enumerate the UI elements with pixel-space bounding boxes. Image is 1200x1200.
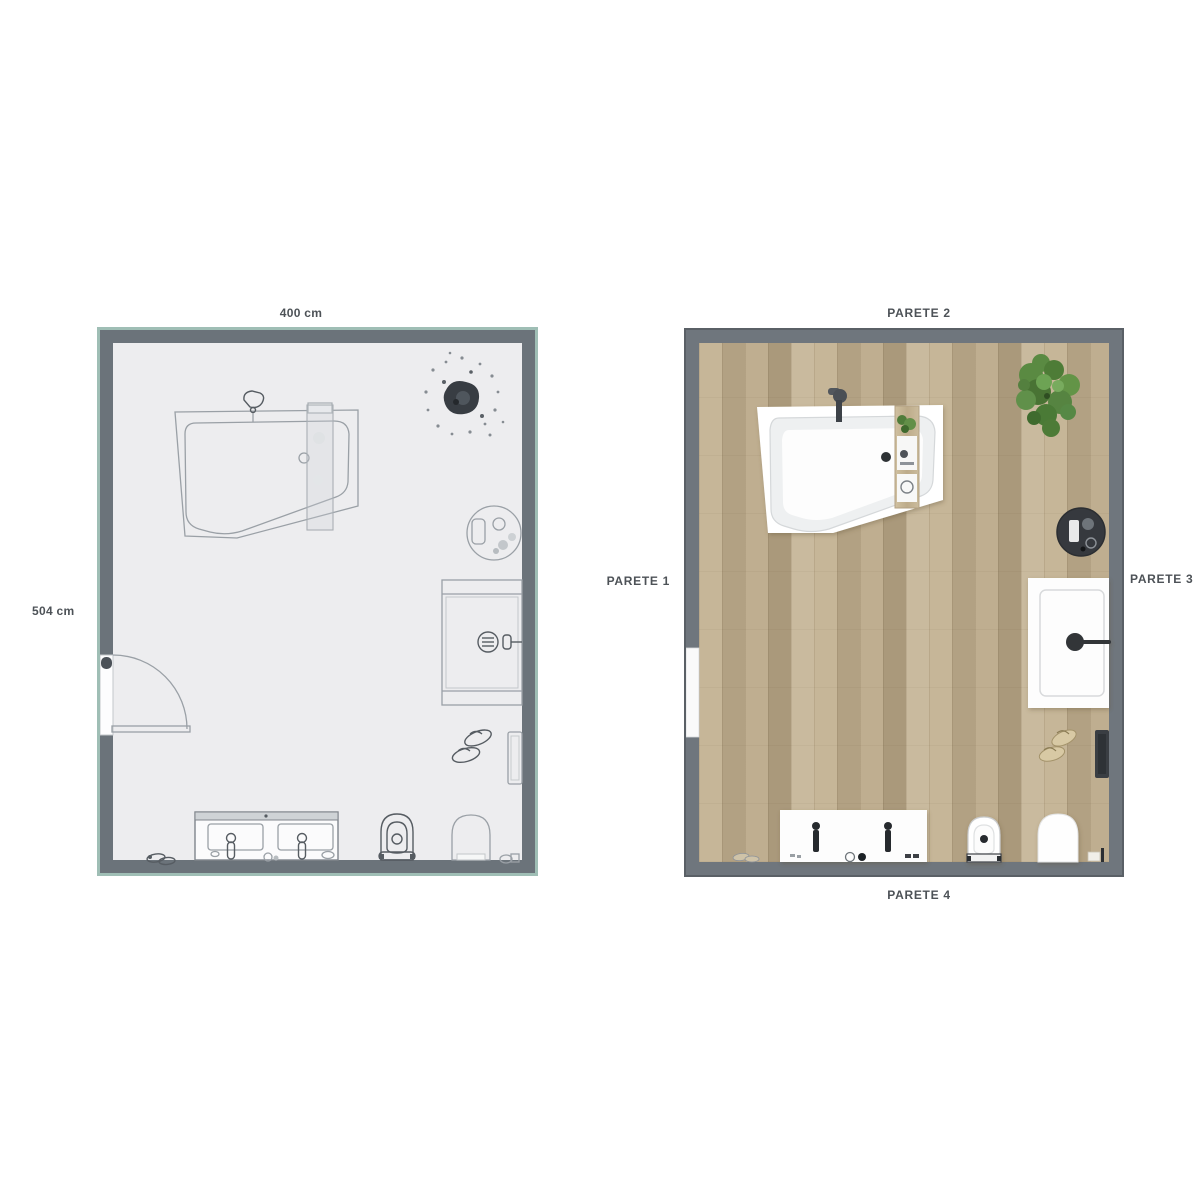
toilet [1038, 814, 1078, 862]
door [686, 648, 699, 737]
bath-shelf [895, 406, 919, 508]
double-vanity [780, 810, 927, 862]
drain-icon [881, 452, 891, 462]
left-plan-height-label: 504 cm [32, 604, 75, 618]
wall-label-parete-4: PARETE 4 [887, 888, 950, 902]
door [100, 655, 190, 735]
towel [1095, 730, 1109, 778]
bidet [379, 814, 415, 860]
shoes-icon [733, 852, 759, 862]
double-vanity [195, 812, 338, 861]
toilet [452, 815, 490, 860]
slippers-icon [1038, 727, 1079, 764]
wall-label-parete-2: PARETE 2 [887, 306, 950, 320]
round-stool [1057, 508, 1105, 556]
wall-label-parete-1: PARETE 1 [607, 574, 670, 588]
toilet-paper-icon [1088, 848, 1104, 862]
schematic-fixtures-layer [100, 330, 535, 873]
shower [442, 580, 522, 705]
rendered-floor-plan [686, 330, 1122, 875]
left-plan-width-label: 400 cm [280, 306, 323, 320]
schematic-floor-plan [100, 330, 535, 873]
rendered-fixtures-layer [686, 330, 1122, 875]
side-table [467, 506, 521, 560]
shower-mat [1028, 578, 1109, 708]
bath-shelf [307, 403, 333, 530]
towel [508, 732, 522, 784]
potted-plant-icon [1016, 354, 1080, 437]
slippers-icon [451, 727, 494, 765]
door-hinge-icon [101, 657, 112, 669]
toilet-paper-icon [500, 854, 519, 863]
bathtub-faucet-icon [244, 391, 264, 422]
wall-label-parete-3: PARETE 3 [1130, 572, 1193, 586]
potted-plant-icon [424, 352, 504, 437]
shoes-icon [147, 853, 176, 865]
bidet [967, 817, 1001, 862]
shower-handle-icon [503, 635, 511, 649]
floor-plan-canvas: 400 cm 504 cm [0, 0, 1200, 1200]
